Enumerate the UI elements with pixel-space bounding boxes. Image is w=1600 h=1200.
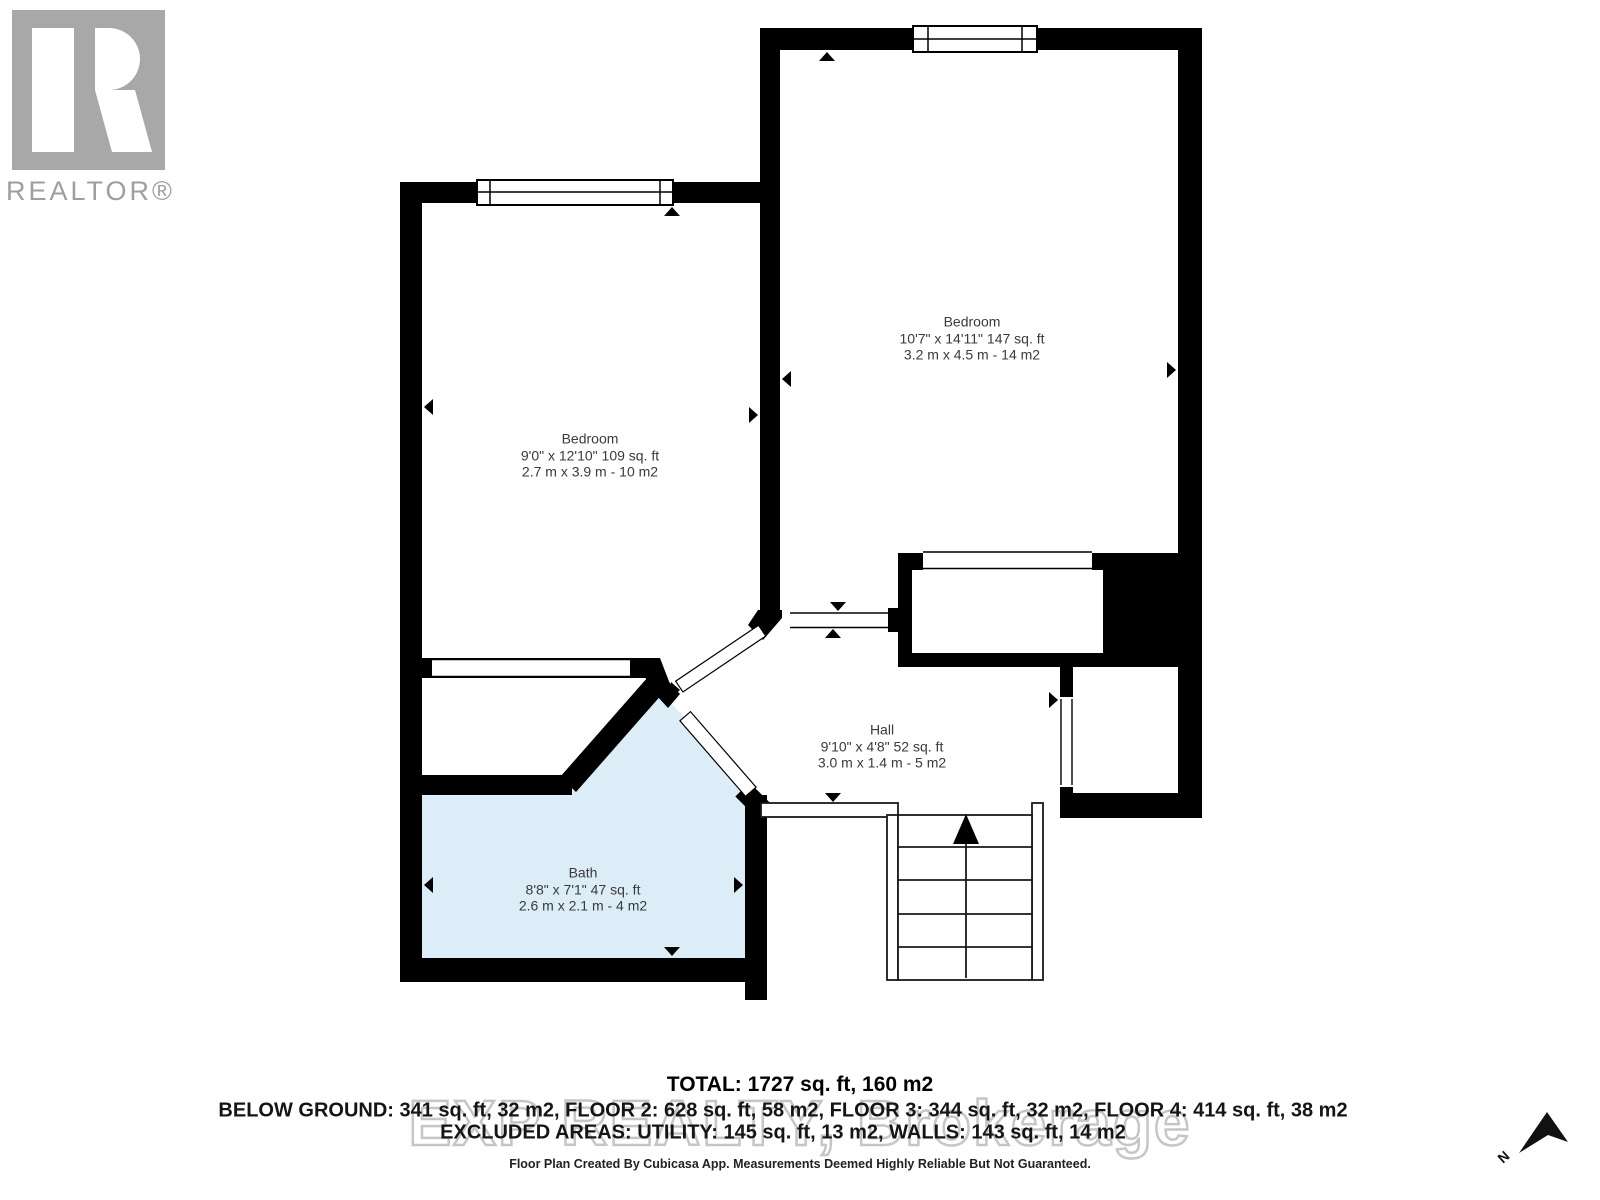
room-dims-imperial: 9'0" x 12'10" 109 sq. ft	[521, 447, 659, 464]
total-area-line: TOTAL: 1727 sq. ft, 160 m2	[667, 1073, 933, 1097]
room-label-bedroom-left: Bedroom 9'0" x 12'10" 109 sq. ft 2.7 m x…	[521, 430, 659, 480]
room-dims-imperial: 10'7" x 14'11" 147 sq. ft	[899, 330, 1044, 347]
room-dims-imperial: 8'8" x 7'1" 47 sq. ft	[519, 881, 647, 898]
room-name: Bath	[519, 864, 647, 881]
room-dims-imperial: 9'10" x 4'8" 52 sq. ft	[818, 738, 946, 755]
window-bedroom-right	[913, 26, 1037, 52]
room-name: Bedroom	[521, 430, 659, 447]
room-label-bath: Bath 8'8" x 7'1" 47 sq. ft 2.6 m x 2.1 m…	[519, 864, 647, 914]
floor-areas-line: BELOW GROUND: 341 sq. ft, 32 m2, FLOOR 2…	[218, 1100, 1347, 1123]
compass-north-label: N	[1494, 1148, 1512, 1167]
room-dims-metric: 3.0 m x 1.4 m - 5 m2	[818, 754, 946, 771]
realtor-logo-text: REALTOR®	[6, 176, 196, 207]
room-label-bedroom-right: Bedroom 10'7" x 14'11" 147 sq. ft 3.2 m …	[899, 313, 1044, 363]
room-label-hall: Hall 9'10" x 4'8" 52 sq. ft 3.0 m x 1.4 …	[818, 721, 946, 771]
stairs	[761, 803, 1043, 980]
floorplan-drawing: N	[0, 0, 1600, 1200]
room-dims-metric: 3.2 m x 4.5 m - 14 m2	[899, 346, 1044, 363]
window-bedroom-left	[477, 180, 673, 205]
excluded-areas-line: EXCLUDED AREAS: UTILITY: 145 sq. ft, 13 …	[440, 1122, 1126, 1145]
disclaimer-footer: Floor Plan Created By Cubicasa App. Meas…	[509, 1157, 1091, 1171]
windows	[477, 26, 1037, 205]
north-compass-icon: N	[1494, 1112, 1568, 1166]
room-dims-metric: 2.7 m x 3.9 m - 10 m2	[521, 463, 659, 480]
room-name: Hall	[818, 721, 946, 738]
room-dims-metric: 2.6 m x 2.1 m - 4 m2	[519, 897, 647, 914]
floorplan-page: REALTOR®	[0, 0, 1600, 1200]
room-name: Bedroom	[899, 313, 1044, 330]
